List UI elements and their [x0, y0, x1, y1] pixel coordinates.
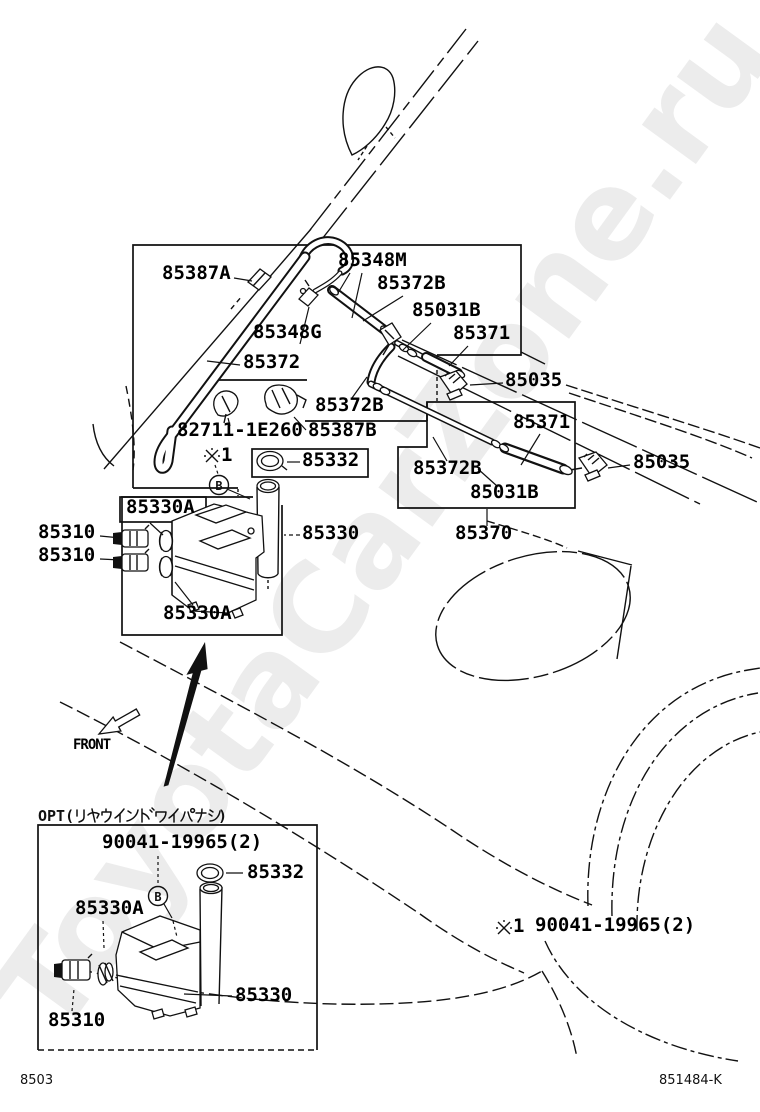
front-label: FRONT: [73, 738, 110, 752]
diagram-artwork: ToyotaCarZone.ru: [0, 0, 760, 1112]
part-label-85348m: 85348M: [338, 251, 407, 270]
ref-digit-bottom: 1: [513, 917, 524, 936]
detail-letter: B: [154, 890, 161, 904]
part-label-85330a-3: 85330A: [75, 899, 144, 918]
part-label-85371-2: 85371: [513, 413, 570, 432]
tank-body: [172, 504, 264, 618]
headlight-outline: [420, 529, 646, 702]
part-label-85310-3: 85310: [48, 1011, 105, 1030]
opt-bolt-part-number: 90041-19965(2): [102, 833, 262, 852]
mirror-shape: [343, 67, 395, 155]
part-label-85035-2: 85035: [633, 453, 690, 472]
grommet-2: [160, 557, 173, 578]
ref-digit-main: 1: [221, 446, 232, 465]
washer-pump-1: [113, 525, 149, 547]
opt-header-prefix: OPT(: [38, 807, 74, 825]
part-label-85330a-2: 85330A: [163, 604, 232, 623]
opt-header-suffix: ): [218, 807, 227, 825]
part-label-85372: 85372: [243, 353, 300, 372]
detail-marker-main: B: [210, 476, 229, 495]
part-label-85372b-1: 85372B: [377, 274, 446, 293]
opt-filler-neck: [200, 883, 222, 1007]
front-arrow: [99, 709, 140, 734]
part-label-85372b-3: 85372B: [413, 459, 482, 478]
figure-code-right: 851484-K: [659, 1074, 722, 1087]
wheel-arch-arcs: [545, 668, 760, 1061]
hose-clip-85387a: [248, 269, 271, 290]
part-label-85330-1: 85330: [302, 524, 359, 543]
figure-code-left: 8503: [20, 1074, 53, 1087]
opt-tank-body: [116, 916, 200, 1019]
clamp-85387b: [265, 385, 306, 414]
part-label-85371-1: 85371: [453, 324, 510, 343]
part-label-85031b-2: 85031B: [470, 483, 539, 502]
part-label-85348g: 85348G: [253, 323, 322, 342]
part-label-85310-1: 85310: [38, 523, 95, 542]
part-label-82711-1e260: 82711-1E260: [177, 421, 303, 440]
part-label-85031b-1: 85031B: [412, 301, 481, 320]
detail-letter: B: [215, 479, 222, 493]
bottom-note-part-number: 90041-19965(2): [535, 916, 695, 935]
part-label-85330a-1: 85330A: [126, 498, 195, 517]
part-label-85332-1: 85332: [302, 451, 359, 470]
parts-diagram-page: ToyotaCarZone.ru: [0, 0, 760, 1112]
part-label-85332-2: 85332: [247, 863, 304, 882]
ref-mark-main: [204, 448, 220, 462]
ref-mark-bottom: [496, 920, 512, 934]
part-label-85330-2: 85330: [235, 986, 292, 1005]
part-label-85387a: 85387A: [162, 264, 231, 283]
part-label-85387b: 85387B: [308, 421, 377, 440]
part-label-85372b-2: 85372B: [315, 396, 384, 415]
elbow-fitting: [299, 280, 318, 306]
part-label-85370: 85370: [455, 524, 512, 543]
part-label-85035-1: 85035: [505, 371, 562, 390]
part-label-85310-2: 85310: [38, 546, 95, 565]
